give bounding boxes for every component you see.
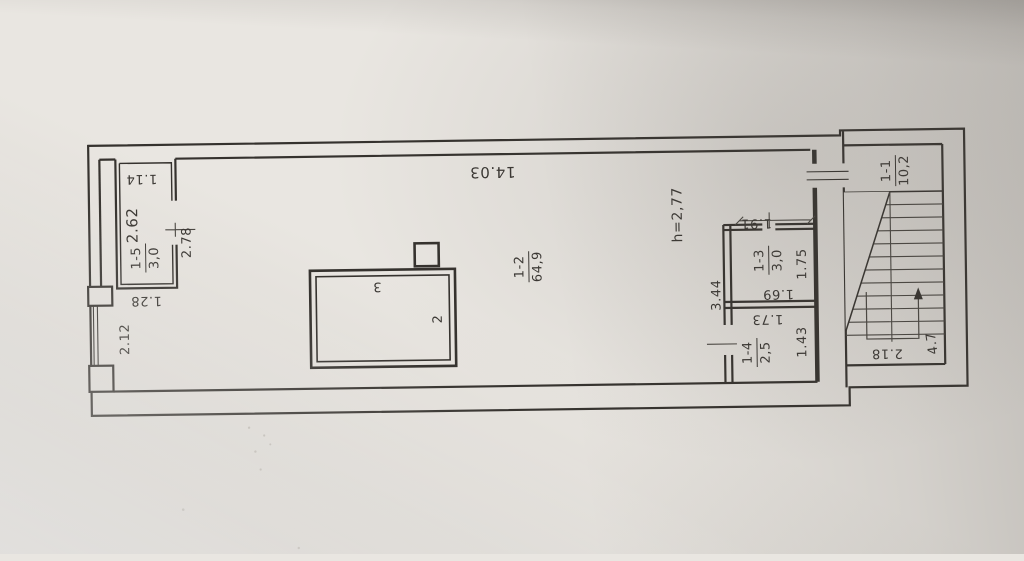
stair-up-arrow xyxy=(914,287,923,299)
equipment-group xyxy=(310,243,457,368)
dimension-4-7: 4.7 xyxy=(925,331,942,355)
staircase-group xyxy=(844,191,945,342)
room-1-1-area: 10,2 xyxy=(896,155,912,186)
room-1-4-area: 2,5 xyxy=(757,338,773,367)
dimension-1-73: 1.73 xyxy=(752,311,784,325)
window-lines xyxy=(93,306,98,366)
stair-center-line xyxy=(890,192,892,342)
dimension-1-28: 1.28 xyxy=(131,293,163,307)
wall-pier-upper xyxy=(88,287,112,306)
room-1-5-area: 3,0 xyxy=(146,244,162,273)
wall-pier-lower xyxy=(89,366,113,392)
room-1-4-code: 1-4 xyxy=(740,338,757,367)
block-left-wall xyxy=(723,225,732,383)
dimension-2-78: 2.78 xyxy=(180,227,194,259)
stair-walk-line xyxy=(866,291,919,339)
room-1-5-code: 1-5 xyxy=(129,244,146,273)
inner-bottom-wall xyxy=(114,382,818,392)
room-1-3-area: 3,0 xyxy=(769,246,785,275)
stair-door-lines xyxy=(807,171,849,180)
paper-specks xyxy=(181,426,300,551)
room-1-1-code: 1-1 xyxy=(879,155,896,186)
column-square xyxy=(415,243,439,266)
room-1-2-code: 1-2 xyxy=(512,251,529,282)
dimension-1-75: 1.75 xyxy=(796,248,810,280)
dimension-1-43: 1.43 xyxy=(796,326,810,358)
dimension-1-69: 1.69 xyxy=(762,286,794,300)
room-label-1-5: 1-5 3,0 xyxy=(129,244,162,273)
dimension-2-18: 2.18 xyxy=(871,346,903,360)
room-label-1-3: 1-3 3,0 xyxy=(752,246,785,275)
position-marker-3: 3 xyxy=(373,279,382,293)
room-1-3-code: 1-3 xyxy=(752,246,769,275)
hall-width-dimension: 14.03 xyxy=(469,163,515,179)
ceiling-height-label: h=2,77 xyxy=(670,187,685,243)
room-label-1-2: 1-2 64,9 xyxy=(512,251,545,282)
inner-top-wall xyxy=(99,150,810,160)
room-label-1-4: 1-4 2,5 xyxy=(740,338,773,367)
block-mid-wall xyxy=(724,301,816,308)
dimension-3-44: 3.44 xyxy=(710,279,724,311)
dimension-2-12: 2.12 xyxy=(119,324,133,356)
dimension-1-14: 1.14 xyxy=(126,171,158,185)
room-label-1-1: 1-1 10,2 xyxy=(879,155,912,186)
floor-plan-drawing: 14.03 1-2 64,9 h=2,77 1.91 1-3 3,0 1.75 … xyxy=(0,0,1024,561)
dimension-2-62: 2.62 xyxy=(125,207,141,243)
floor-plan-photo: 14.03 1-2 64,9 h=2,77 1.91 1-3 3,0 1.75 … xyxy=(0,0,1024,554)
room-1-2-area: 64,9 xyxy=(529,251,545,282)
dimension-1-91: 1.91 xyxy=(740,216,772,230)
hall-right-wall xyxy=(814,150,817,382)
position-marker-2: 2 xyxy=(432,314,446,323)
inner-left-wall xyxy=(99,160,101,287)
